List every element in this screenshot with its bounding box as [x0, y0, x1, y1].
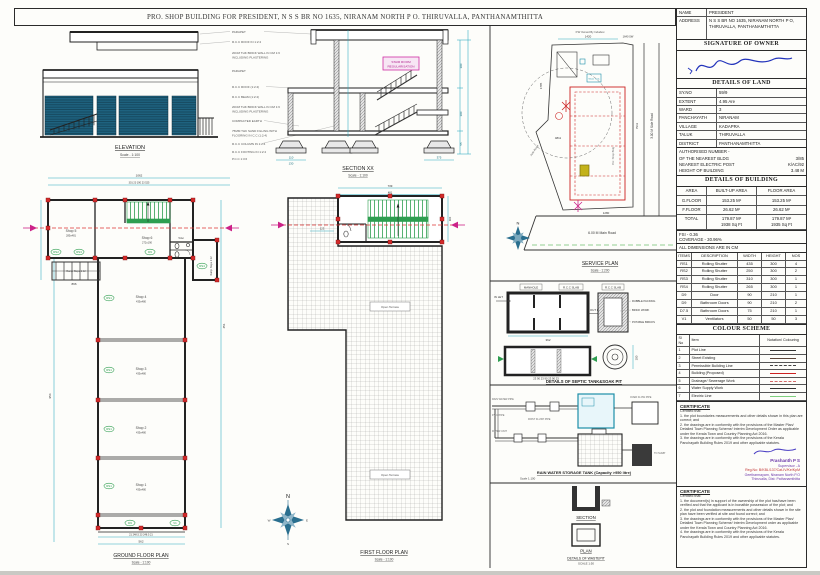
- compass-n-label: N: [517, 221, 520, 226]
- owner-signature: [682, 52, 802, 78]
- svg-text:Shop 2: Shop 2: [136, 426, 147, 430]
- item-cell: Rolling Shutter: [692, 261, 738, 269]
- cs-swatch: [760, 378, 806, 386]
- land-value: PANTHANAMTHITTA: [717, 140, 806, 147]
- svg-text:RS2: RS2: [53, 250, 59, 254]
- elevation-scale: Scale - 1:100: [120, 153, 140, 157]
- svg-text:D9: D9: [128, 521, 132, 525]
- building-cell: 26.62 M²: [707, 206, 757, 215]
- gate-marker: [574, 200, 582, 212]
- svg-text:RAIN WATER PIPE: RAIN WATER PIPE: [492, 398, 514, 401]
- svg-text:Open Terrace: Open Terrace: [381, 473, 399, 477]
- svg-text:R.C.C BEAM (1:2:4): R.C.C BEAM (1:2:4): [232, 95, 259, 99]
- building-cell: 179.87 M²1938 Sq Ft: [707, 215, 757, 230]
- water-tank-label: Water Tank: [589, 78, 601, 81]
- svg-text:R.C.C COLUMN IN 1:2:4: R.C.C COLUMN IN 1:2:4: [232, 142, 266, 146]
- item-cell: 250: [738, 268, 762, 276]
- item-cell: 90: [738, 300, 762, 308]
- certificate-2-line: 1. the document(s) in support of the own…: [680, 499, 803, 508]
- svg-text:RS1: RS1: [106, 427, 112, 431]
- item-cell: RS1: [677, 261, 692, 269]
- items-col-header: NOS: [786, 253, 806, 261]
- building-col-header: AREA: [677, 187, 707, 196]
- item-cell: Rolling Shutter: [692, 268, 738, 276]
- svg-text:Auto Road: Auto Road: [529, 144, 540, 157]
- building-col-header: BUILT-UP AREA: [707, 187, 757, 196]
- svg-text:954: 954: [48, 393, 52, 398]
- cs-no: 7: [677, 393, 690, 401]
- cs-col-header: Item: [690, 335, 760, 347]
- svg-text:55: 55: [459, 142, 463, 146]
- certificate-2: CERTIFICATE Certified that: 1. the docum…: [677, 487, 806, 542]
- svg-text:Pro: Shop Bldg: Pro: Shop Bldg: [611, 146, 615, 165]
- svg-text:P.W Owned By Indudevi: P.W Owned By Indudevi: [576, 30, 605, 34]
- certificate-2-line: 3. the drawings are in conformity with t…: [680, 517, 803, 530]
- soakpit-icon: [580, 165, 589, 176]
- svg-text:Ramp Slope 1:12: Ramp Slope 1:12: [210, 256, 213, 276]
- svg-text:6.00 M Main Road: 6.00 M Main Road: [588, 231, 616, 235]
- svg-text:STAIR ROOM: STAIR ROOM: [391, 60, 411, 64]
- drawing-area: ELEVATION Scale - 1:100 PARAPET R.C.C RO…: [14, 26, 676, 568]
- svg-text:272x190: 272x190: [142, 241, 153, 245]
- note-label: AUTHORISED NUMBER -: [679, 149, 730, 154]
- svg-text:375: 375: [437, 156, 442, 160]
- rainwater-scale: Scale 1:100: [520, 477, 536, 481]
- land-table: SY.NO59/9 EXTENT4.95 Are WARD3 PANCHAYAT…: [677, 89, 806, 148]
- svg-text:R.C.C SLAB: R.C.C SLAB: [563, 286, 579, 290]
- construction-notes: PARAPET R.C.C ROOF IN 1:2:4 20CM THK BRI…: [200, 30, 334, 161]
- cs-no: 5: [677, 378, 690, 386]
- item-cell: 2: [786, 268, 806, 276]
- owner-signature-box: [677, 51, 806, 79]
- items-col-header: HEIGHT: [762, 253, 786, 261]
- cs-swatch: [760, 347, 806, 355]
- land-label: PANCHAYATH: [677, 114, 717, 122]
- land-value: 4.95 Are: [717, 98, 806, 106]
- svg-text:V1: V1: [173, 521, 177, 525]
- svg-text:S: S: [287, 542, 289, 546]
- land-value: THIRUVALLA: [717, 131, 806, 139]
- first-floor-title: FIRST FLOOR PLAN: [360, 550, 408, 556]
- cs-item: Street Existing: [690, 355, 760, 363]
- svg-text:739: 739: [388, 184, 393, 188]
- cs-item: Permissible Building Line: [690, 363, 760, 371]
- item-cell: 90: [738, 292, 762, 300]
- svg-text:R.C.C ROOF IN 1:2:4: R.C.C ROOF IN 1:2:4: [232, 40, 261, 44]
- item-cell: 210: [762, 300, 786, 308]
- svg-text:RS1: RS1: [106, 368, 112, 372]
- drawing-sheet: PRO. SHOP BUILDING FOR PRESIDENT, N S S …: [0, 0, 820, 575]
- owner-name-label: NAME: [677, 9, 707, 17]
- item-cell: 210: [762, 292, 786, 300]
- first-floor-plan: 739 481 243 156 123 300: [271, 184, 465, 562]
- owner-name-value: PRESIDENT: [707, 9, 806, 17]
- signature-header: SIGNATURE OF OWNER: [677, 40, 806, 51]
- elevation-drawing: ELEVATION Scale - 1:100: [40, 32, 218, 157]
- svg-text:FLOORING IN C.C (1:2:4): FLOORING IN C.C (1:2:4): [232, 134, 267, 138]
- land-header: DETAILS OF LAND: [677, 79, 806, 90]
- svg-text:N: N: [286, 494, 290, 500]
- svg-text:1280: 1280: [603, 211, 610, 215]
- cs-col-header: Sl No: [677, 335, 690, 347]
- cs-col-header: Notation/ Colouring: [760, 335, 806, 347]
- cs-no: 1: [677, 347, 690, 355]
- svg-text:451: 451: [222, 323, 226, 328]
- svg-text:100: 100: [635, 355, 639, 360]
- item-cell: 50: [762, 316, 786, 324]
- owner-address-label: ADDRESS: [677, 17, 707, 39]
- items-table: ITEMS DESCRIPTION WIDTH HEIGHT NOS RS1Ro…: [677, 253, 806, 325]
- note-value: K/AC/92: [788, 162, 804, 167]
- cs-swatch: [760, 385, 806, 393]
- item-cell: Rolling Shutter: [692, 284, 738, 292]
- svg-text:20CM THK BRICK WALL IN CM 1:6: 20CM THK BRICK WALL IN CM 1:6: [232, 105, 280, 109]
- svg-text:4811: 4811: [555, 136, 562, 140]
- svg-text:COMPACTED EARTH: COMPACTED EARTH: [232, 119, 262, 123]
- items-col-header: ITEMS: [677, 253, 692, 261]
- cs-swatch: [760, 363, 806, 371]
- svg-text:1640 SW: 1640 SW: [623, 35, 634, 39]
- section-footings: [276, 141, 454, 153]
- svg-text:REGULARISATION: REGULARISATION: [387, 65, 414, 69]
- items-col-header: WIDTH: [738, 253, 762, 261]
- ground-floor-plan: 1062 301 23 190 23 525 896 954 451 21 24…: [23, 174, 239, 565]
- svg-text:435x480: 435x480: [136, 488, 147, 492]
- svg-text:21 248.5 23 248.5 21: 21 248.5 23 248.5 21: [129, 534, 153, 537]
- certificate-1: CERTIFICATE Certified that: 1. the plot …: [677, 402, 806, 487]
- svg-text:Ramp Slope 1:12: Ramp Slope 1:12: [66, 270, 86, 273]
- item-cell: Rolling Shutter: [692, 276, 738, 284]
- gf-item-tags: RS2 RS3 D9 RS4 RS1 RS1 RS1 RS1 D9 V1: [51, 249, 207, 526]
- svg-text:1062: 1062: [136, 174, 143, 178]
- building-header: DETAILS OF BUILDING: [677, 176, 806, 187]
- item-cell: 300: [762, 284, 786, 292]
- svg-text:PARAPET: PARAPET: [232, 30, 246, 34]
- item-cell: RS4: [677, 284, 692, 292]
- elevation-side-railing: [198, 118, 214, 135]
- svg-text:481: 481: [388, 190, 393, 194]
- wastepit-section-label: SECTION: [576, 515, 596, 520]
- svg-text:RS1: RS1: [106, 296, 112, 300]
- svg-text:896: 896: [71, 282, 76, 286]
- item-cell: V1: [677, 316, 692, 324]
- land-label: DISTRICT: [677, 140, 717, 147]
- building-cell: F.FLOOR: [677, 206, 707, 215]
- cs-no: 6: [677, 385, 690, 393]
- item-cell: 1: [786, 292, 806, 300]
- section-title: SECTION XX: [342, 166, 374, 172]
- item-cell: RS2: [677, 268, 692, 276]
- svg-text:R.C.C SLAB: R.C.C SLAB: [605, 286, 621, 290]
- svg-text:FIRST FLUSH PIPE: FIRST FLUSH PIPE: [528, 418, 551, 421]
- item-cell: 50: [738, 316, 762, 324]
- wastepit-title: DETAILS OF WASTEPIT: [567, 557, 605, 561]
- fsi-block: FSI - 0.36 COVERAGE - 30.96%: [677, 231, 806, 245]
- svg-text:1785: 1785: [539, 82, 543, 89]
- svg-text:INCLUDING PLASTERING: INCLUDING PLASTERING: [232, 56, 269, 60]
- ground-floor-title: GROUND FLOOR PLAN: [113, 553, 169, 559]
- svg-text:RUBBLE PACKING: RUBBLE PACKING: [632, 299, 655, 303]
- item-cell: Bathroom Doors: [692, 300, 738, 308]
- items-col-header: DESCRIPTION: [692, 253, 738, 261]
- item-cell: 310: [738, 276, 762, 284]
- item-cell: 1: [786, 284, 806, 292]
- item-cell: 435: [738, 261, 762, 269]
- svg-text:110: 110: [289, 156, 294, 160]
- svg-text:300: 300: [459, 111, 463, 116]
- section-scale: Scale - 1:100: [348, 174, 368, 178]
- svg-text:RS1: RS1: [106, 484, 112, 488]
- cs-item: Plot Line: [690, 347, 760, 355]
- item-cell: 300: [762, 261, 786, 269]
- note-label: HEIGHT OF BUILDING: [679, 168, 724, 173]
- svg-text:285x481: 285x481: [66, 234, 77, 238]
- svg-text:INCLUDING PLASTERING: INCLUDING PLASTERING: [232, 110, 269, 114]
- svg-text:MANHOLE: MANHOLE: [524, 286, 538, 290]
- certificate-2-line: 4. the drawings are in conformity with t…: [680, 530, 803, 539]
- svg-text:OVER FLOW PIPE: OVER FLOW PIPE: [630, 396, 652, 399]
- svg-text:D9: D9: [148, 250, 152, 254]
- building-col-header: FLOOR AREA: [757, 187, 806, 196]
- svg-text:P.V.C PIPE: P.V.C PIPE: [492, 414, 505, 417]
- item-cell: Ventilators: [692, 316, 738, 324]
- wastepit-plan-label: PLAN: [580, 549, 591, 554]
- service-plan-scale: Scale - 1:200: [591, 269, 610, 273]
- svg-text:362: 362: [545, 338, 550, 342]
- svg-text:1420: 1420: [585, 35, 592, 39]
- owner-block: NAME PRESIDENT ADDRESS N S S BR NO 1635,…: [677, 9, 806, 40]
- svg-text:FILTER UNIT: FILTER UNIT: [492, 430, 507, 433]
- land-value: KADAPRA: [717, 123, 806, 131]
- building-cell: 153.25 M²: [757, 196, 806, 205]
- item-cell: Bathroom Doors: [692, 308, 738, 316]
- note-value: 3.48 M: [791, 168, 804, 173]
- item-cell: D9: [677, 300, 692, 308]
- cs-item: Electric Line: [690, 393, 760, 401]
- land-notes: AUTHORISED NUMBER - OF THE NEAREST BLDG3…: [677, 148, 806, 176]
- svg-text:130: 130: [289, 162, 294, 166]
- cs-no: 3: [677, 363, 690, 371]
- service-plan-title: SERVICE PLAN: [582, 261, 619, 267]
- item-cell: 3: [786, 316, 806, 324]
- building-cell: 179.87 M²1935 Sq Ft: [757, 215, 806, 230]
- septic-title: DETAILS OF SEPTIC TANK&SOAK PIT: [546, 379, 623, 384]
- item-cell: 265: [738, 284, 762, 292]
- svg-text:562: 562: [138, 540, 143, 544]
- land-label: TALUK: [677, 131, 717, 139]
- svg-text:Shop 1: Shop 1: [136, 483, 147, 487]
- building-table: AREA BUILT-UP AREA FLOOR AREA G.FLOOR 15…: [677, 187, 806, 231]
- item-cell: 300: [762, 268, 786, 276]
- rainwater-title: RAIN WATER STORAGE TANK (Capacity >950 l…: [537, 470, 632, 475]
- building-cell: G.FLOOR: [677, 196, 707, 205]
- svg-text:E: E: [306, 519, 308, 523]
- land-label: WARD: [677, 106, 717, 114]
- supervisor-stamp: Prashanth P S Supervisor - A Reg.No: B/K…: [680, 446, 803, 481]
- certificate-1-line: 3. the drawings are in conformity with t…: [680, 436, 803, 445]
- wastepit-scale: SCALE 1:50: [578, 562, 594, 566]
- supervisor-signature: [750, 446, 800, 456]
- item-cell: RS3: [677, 276, 692, 284]
- svg-text:3.00 M Side Road: 3.00 M Side Road: [650, 113, 654, 139]
- land-label: VILLAGE: [677, 123, 717, 131]
- item-cell: D7.5: [677, 308, 692, 316]
- item-cell: 300: [762, 276, 786, 284]
- ff-terrace: [288, 198, 442, 520]
- certificate-1-line: 2. the drawings are in conformity with t…: [680, 423, 803, 436]
- cs-swatch: [760, 370, 806, 378]
- cs-swatch: [760, 393, 806, 401]
- stamp-address: Thiruvalla, Dist: Pathanamthitta: [680, 477, 800, 482]
- note-label: OF THE NEAREST BLDG: [679, 156, 729, 161]
- land-label: SY.NO: [677, 89, 717, 97]
- svg-text:RS4: RS4: [199, 264, 205, 268]
- cs-item: Water Supply Work: [690, 385, 760, 393]
- sheet-title: PRO. SHOP BUILDING FOR PRESIDENT, N S S …: [147, 14, 543, 21]
- item-cell: 75: [738, 308, 762, 316]
- svg-text:R.C.C ROOF (1:2:4): R.C.C ROOF (1:2:4): [232, 85, 259, 89]
- note-label: NEAREST ELECTRIC POST: [679, 162, 735, 167]
- item-cell: 4: [786, 261, 806, 269]
- svg-text:435x480: 435x480: [136, 431, 147, 435]
- colour-scheme-header: COLOUR SCHEME: [677, 325, 806, 336]
- cs-no: 2: [677, 355, 690, 363]
- cs-item: Building (Proposed): [690, 370, 760, 378]
- north-compass: N E S W: [268, 494, 308, 546]
- well-marker: [556, 100, 571, 120]
- cs-no: 4: [677, 370, 690, 378]
- certificate-1-line: 1. the plot boundaries measurements and …: [680, 414, 803, 423]
- wastepit-details: SECTION PLAN DETAILS OF WASTEPIT SCALE 1…: [567, 486, 610, 566]
- svg-text:Open Terrace: Open Terrace: [381, 305, 399, 309]
- svg-text:BRICK WORK: BRICK WORK: [632, 308, 650, 312]
- item-cell: Door: [692, 292, 738, 300]
- ff-stair: [368, 200, 428, 238]
- svg-text:7911: 7911: [635, 123, 639, 130]
- svg-text:301 23 190 23 525: 301 23 190 23 525: [129, 182, 150, 185]
- building-cell: TOTAL: [677, 215, 707, 230]
- dims-note: ALL DIMENSIONS ARE IN CM: [677, 244, 806, 252]
- item-cell: 1: [786, 308, 806, 316]
- item-cell: 210: [762, 308, 786, 316]
- ground-floor-scale: Scale - 1:100: [132, 561, 151, 565]
- svg-text:Shop 5: Shop 5: [66, 229, 77, 233]
- item-cell: 2: [786, 300, 806, 308]
- service-plan-drawing: Water Tank: [506, 30, 676, 273]
- first-floor-scale: Scale - 1:100: [375, 558, 394, 562]
- info-panel: NAME PRESIDENT ADDRESS N S S BR NO 1635,…: [676, 8, 807, 568]
- septic-tank-details: MANHOLE R.C.C SLAB IN LET OUT LET 362 23…: [494, 284, 655, 384]
- svg-text:Toilet: Toilet: [178, 237, 184, 240]
- svg-text:P.C.C 1:3:6: P.C.C 1:3:6: [232, 157, 247, 161]
- land-value: NIRANAM: [717, 114, 806, 122]
- svg-text:IN LET: IN LET: [494, 295, 503, 299]
- land-label: EXTENT: [677, 98, 717, 106]
- coverage-value: COVERAGE - 30.96%: [679, 237, 804, 242]
- svg-text:435x480: 435x480: [136, 372, 147, 376]
- item-cell: 1: [786, 276, 806, 284]
- item-cell: D9: [677, 292, 692, 300]
- elevation-title: ELEVATION: [115, 145, 145, 151]
- svg-text:Shop 6: Shop 6: [142, 236, 153, 240]
- building-cell: 26.62 M²: [757, 206, 806, 215]
- svg-text:435x480: 435x480: [136, 300, 147, 304]
- svg-text:PARAPET: PARAPET: [232, 69, 246, 73]
- svg-text:300: 300: [448, 216, 452, 221]
- sheet-title-bar: PRO. SHOP BUILDING FOR PRESIDENT, N S S …: [14, 8, 676, 26]
- svg-text:R.C.C FOOTING IN 1:2:4: R.C.C FOOTING IN 1:2:4: [232, 150, 266, 154]
- svg-text:75MM THK SAND FILLING WITH: 75MM THK SAND FILLING WITH: [232, 129, 277, 133]
- building-cell: 153.25 M²: [707, 196, 757, 205]
- svg-text:20CM THK BRICK WALL IN CM 1:6: 20CM THK BRICK WALL IN CM 1:6: [232, 51, 280, 55]
- gf-stair: [127, 202, 170, 224]
- owner-address-value: N S S BR NO 1635, NIRANAM NORTH P O, THI…: [707, 17, 806, 39]
- certificate-2-line: 2. the plot and foundation measurements …: [680, 508, 803, 517]
- svg-text:Shop 3: Shop 3: [136, 367, 147, 371]
- section-stair-tag: STAIR ROOM REGULARISATION: [383, 57, 419, 70]
- service-plan-compass: N: [506, 221, 530, 251]
- svg-text:300: 300: [459, 63, 463, 68]
- land-value: 3: [717, 106, 806, 114]
- sheet-shadow-bottom: [0, 571, 820, 575]
- cs-swatch: [760, 355, 806, 363]
- svg-text:TO SUMP: TO SUMP: [654, 452, 666, 455]
- colour-scheme-table: Sl No Item Notation/ Colouring 1Plot Lin…: [677, 335, 806, 402]
- note-value: 3/85: [796, 156, 804, 161]
- svg-text:RS3: RS3: [76, 250, 82, 254]
- svg-text:POTABLE BRICKS: POTABLE BRICKS: [632, 320, 655, 324]
- rainwater-tank-details: RAIN WATER PIPE P.V.C PIPE FIRST FLUSH P…: [492, 394, 666, 481]
- svg-text:W: W: [268, 519, 271, 523]
- land-value: 59/9: [717, 89, 806, 97]
- svg-text:Shop 4: Shop 4: [136, 295, 147, 299]
- cs-item: Drainage/ Sewerage Work: [690, 378, 760, 386]
- section-drawing: STAIR ROOM REGULARISATION 300 300 55 110…: [276, 30, 471, 178]
